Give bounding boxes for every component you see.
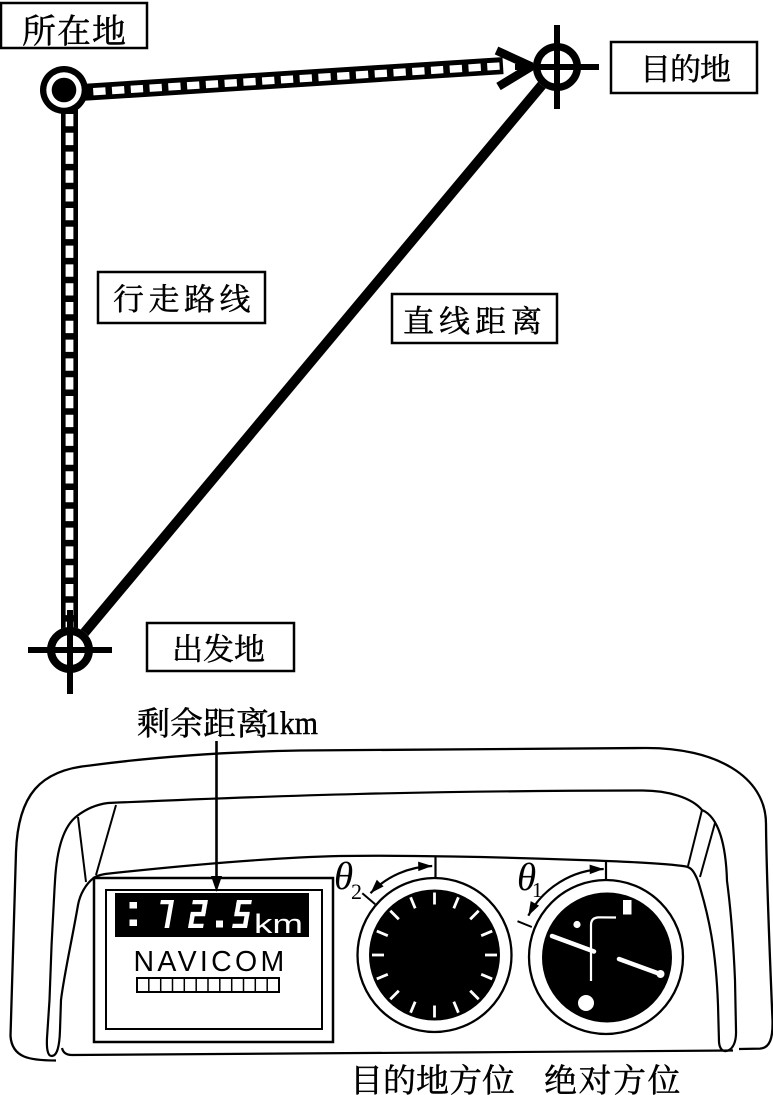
svg-text:2: 2 <box>351 879 362 904</box>
svg-text:1: 1 <box>532 878 543 902</box>
svg-text:1km: 1km <box>265 706 318 742</box>
svg-text:NAVICOM: NAVICOM <box>134 946 288 978</box>
svg-text:km: km <box>254 909 303 939</box>
